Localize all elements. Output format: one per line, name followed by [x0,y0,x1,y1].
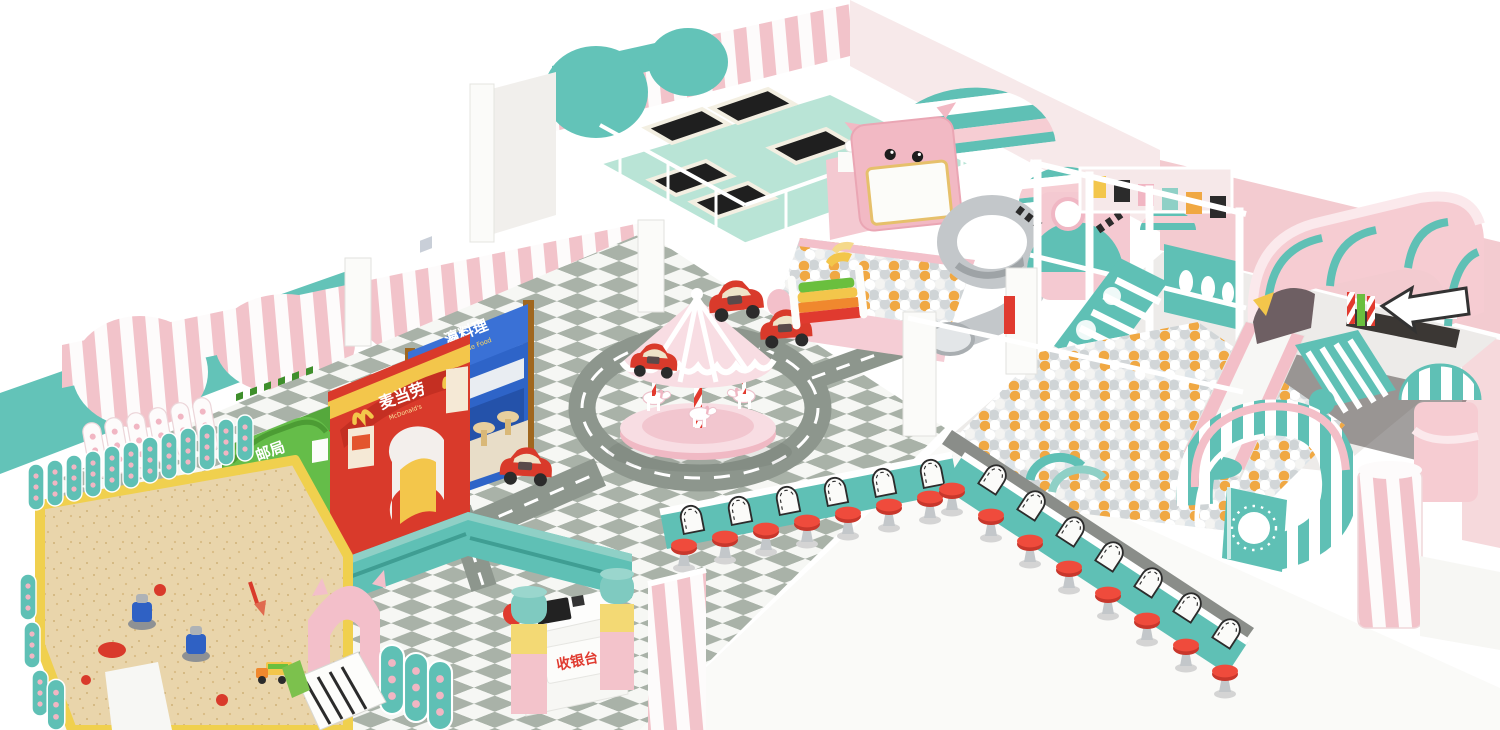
desk-pillar-right [600,568,634,690]
projection-board [867,161,952,225]
red-banner [1004,296,1015,334]
notice-card [312,438,328,463]
red-bucket [98,642,126,658]
desk-pillar-left [511,586,547,714]
playground-render: 瀛料理 Japanese Food 麦当劳 McDonald's 邮局 POST… [0,0,1500,730]
rainbow-bars [1347,292,1375,326]
poster-right [446,366,468,413]
striped-wall-segment [648,570,706,730]
